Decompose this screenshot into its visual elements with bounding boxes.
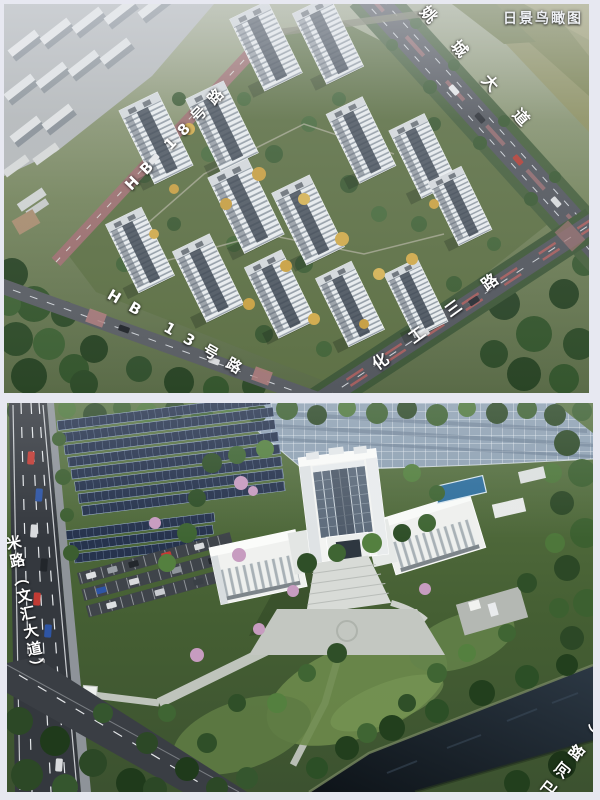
campus-haze bbox=[7, 403, 593, 792]
bottom-aerial-artwork bbox=[7, 403, 593, 792]
bottom-aerial-image: 米路（文汇大道） 卫河路（ bbox=[7, 403, 593, 792]
top-aerial-artwork bbox=[4, 4, 589, 393]
top-aerial-image: HB 18号路 HB 13号路 化工三路 姚城大道 日景鸟瞰图 bbox=[4, 4, 589, 393]
page-canvas: HB 18号路 HB 13号路 化工三路 姚城大道 日景鸟瞰图 bbox=[0, 0, 600, 800]
atmospheric-haze bbox=[4, 4, 589, 393]
